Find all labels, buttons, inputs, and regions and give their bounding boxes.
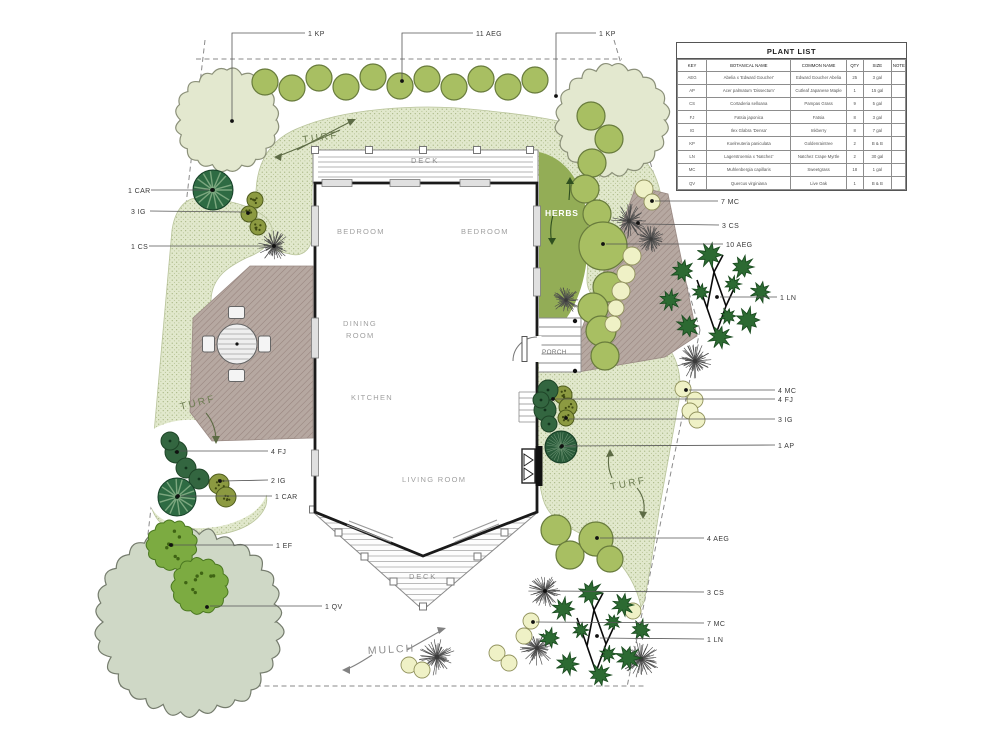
plant-label: 4 MC <box>778 388 796 395</box>
ig-speckle <box>571 406 573 408</box>
table-row: IGIlex Glabra 'Densa'Inkberry87 gal <box>678 124 906 137</box>
table-cell: Cortaderia selloana <box>707 97 791 110</box>
ig-speckle <box>253 199 255 201</box>
cs-pampas-grass <box>678 344 711 378</box>
ig-speckle <box>259 224 261 226</box>
ig-speckle <box>567 419 569 421</box>
plant-label: 1 LN <box>707 637 723 644</box>
plant-label: 1 KP <box>308 31 325 38</box>
ig-speckle <box>254 223 256 225</box>
aeg-abelia <box>441 74 467 100</box>
arrowhead <box>342 666 350 674</box>
ln-leaf-cluster <box>737 307 760 333</box>
leader-dot <box>595 634 599 638</box>
table-cell: AEG <box>678 71 707 84</box>
column-header: SIZE <box>863 60 891 72</box>
ln-leaf-cluster <box>605 615 621 630</box>
ig-speckle <box>215 487 217 489</box>
cs-center <box>649 237 653 241</box>
leader-dot <box>650 199 654 203</box>
area-label: MULCH <box>368 643 416 657</box>
table-cell: 30 gal <box>863 150 891 163</box>
ig-speckle <box>255 228 257 230</box>
aeg-abelia <box>591 342 619 370</box>
column-header: COMMON NAME <box>791 60 846 72</box>
ef-speckle <box>176 557 179 560</box>
fj-center <box>540 399 543 402</box>
table-cell: Inkberry <box>791 124 846 137</box>
aeg-abelia <box>387 73 413 99</box>
ig-speckle <box>216 481 218 483</box>
plant-label: 1 LN <box>780 295 796 302</box>
table-cell: LN <box>678 150 707 163</box>
cs-center <box>564 298 568 302</box>
ig-speckle <box>567 414 569 416</box>
area-label: LIVING ROOM <box>402 475 466 484</box>
plant-label: 1 AP <box>778 443 794 450</box>
plant-label: 1 CAR <box>128 188 151 195</box>
ln-leaf-cluster <box>579 581 604 606</box>
ln-leaf-cluster <box>540 628 560 648</box>
leader-dot <box>531 620 535 624</box>
table-cell: 1 gal <box>863 163 891 176</box>
fj-center <box>185 467 188 470</box>
ig-speckle <box>570 403 572 405</box>
column-header: BOTANICAL NAME <box>707 60 791 72</box>
aeg-abelia <box>414 66 440 92</box>
table-cell <box>891 177 905 190</box>
chair <box>229 307 245 319</box>
plant-label: 3 CS <box>707 590 724 597</box>
ln-leaf-cluster <box>573 623 589 638</box>
house-outline <box>315 183 537 556</box>
aeg-abelia <box>495 74 521 100</box>
table-cell: 2 <box>846 150 863 163</box>
aeg-abelia <box>597 546 623 572</box>
table-cell: 8 <box>846 124 863 137</box>
table-cell: Quercus virginiana <box>707 177 791 190</box>
mc-sweetgrass <box>605 316 621 332</box>
ef-speckle <box>212 574 215 577</box>
plant-label: 4 AEG <box>707 536 729 543</box>
table-cell: B & B <box>863 177 891 190</box>
cs-blade <box>536 638 537 645</box>
ig-speckle <box>218 484 220 486</box>
table-row: CSCortaderia selloanaPampas Grass95 gal <box>678 97 906 110</box>
plant-list-grid: KEYBOTANICAL NAMECOMMON NAMEQTYSIZENOTE … <box>677 59 906 190</box>
ig-speckle <box>561 395 563 397</box>
aeg-abelia <box>577 102 605 130</box>
plant-label: 7 MC <box>707 621 725 628</box>
table-cell <box>891 84 905 97</box>
ef-speckle <box>194 591 197 594</box>
mc-sweetgrass <box>689 412 705 428</box>
aeg-abelia <box>333 74 359 100</box>
ig-inkberry <box>250 219 266 235</box>
ef-speckle <box>184 581 187 584</box>
ln-leaf-cluster <box>708 327 732 349</box>
ln-crape-myrtle <box>540 581 651 686</box>
area-label: PORCH <box>542 349 567 356</box>
plant-list-header-row: KEYBOTANICAL NAMECOMMON NAMEQTYSIZENOTE <box>678 60 906 72</box>
table-cell: CS <box>678 97 707 110</box>
plant-label: 10 AEG <box>726 242 753 249</box>
ig-speckle <box>255 197 257 199</box>
plant-label: 1 CAR <box>275 494 298 501</box>
ig-speckle <box>250 198 252 200</box>
table-cell: 7 gal <box>863 124 891 137</box>
area-label: DINING <box>343 319 377 328</box>
table-cell: 8 <box>846 111 863 124</box>
table-cell: MC <box>678 163 707 176</box>
ef-speckle <box>191 588 194 591</box>
leader-dot <box>560 444 564 448</box>
plant-label: 2 IG <box>271 478 286 485</box>
table-row: AEGAbelia x 'Edward Goucher'Edward Gouch… <box>678 71 906 84</box>
table-row: MCMuhlenbergia capillarisSweetgrass181 g… <box>678 163 906 176</box>
chair <box>203 336 215 352</box>
porch-steps <box>539 318 581 373</box>
table-cell: 3 gal <box>863 71 891 84</box>
table-cell <box>891 97 905 110</box>
ln-leaf-cluster <box>751 282 771 303</box>
cs-center <box>535 646 540 651</box>
table-cell <box>891 150 905 163</box>
leader-dot <box>564 416 568 420</box>
table-row: KPKoelreuteria paniculataGoldenraintree2… <box>678 137 906 150</box>
leader-dot <box>543 589 547 593</box>
ef-speckle <box>174 555 177 558</box>
plant-label: 1 KP <box>599 31 616 38</box>
ig-speckle <box>568 406 570 408</box>
leader-dot <box>595 536 599 540</box>
leader-line <box>600 638 704 639</box>
leader-dot <box>272 244 276 248</box>
area-label: HERBS <box>545 208 579 218</box>
ln-leaf-cluster <box>693 284 710 300</box>
ef-speckle <box>200 572 203 575</box>
table-row: QVQuercus virginianaLive Oak1B & B <box>678 177 906 190</box>
column-header: KEY <box>678 60 707 72</box>
area-label: DECK <box>411 156 439 165</box>
aeg-abelia <box>579 222 627 270</box>
leader-line <box>536 622 704 623</box>
plant-label: 4 FJ <box>778 397 793 404</box>
table-cell: Sweetgrass <box>791 163 846 176</box>
table-cell: KP <box>678 137 707 150</box>
ln-leaf-cluster <box>552 597 574 621</box>
table-cell: QV <box>678 177 707 190</box>
table-cell: 9 <box>846 97 863 110</box>
chair <box>259 336 271 352</box>
table-cell: 1 <box>846 177 863 190</box>
leader-dot <box>205 605 209 609</box>
aeg-abelia <box>541 515 571 545</box>
ig-speckle <box>250 212 252 214</box>
ig-speckle <box>564 390 566 392</box>
ln-leaf-cluster <box>615 647 641 670</box>
aeg-abelia <box>595 125 623 153</box>
ln-leaf-cluster <box>733 255 754 277</box>
leader-dot <box>246 211 250 215</box>
table-cell: Lagerstroemia x 'Natchez' <box>707 150 791 163</box>
plant-label: 3 IG <box>778 417 793 424</box>
cs-center <box>627 219 632 224</box>
leader-line <box>548 591 704 592</box>
mc-sweetgrass <box>612 282 630 300</box>
ef-speckle <box>195 574 198 577</box>
ln-leaf-cluster <box>589 664 611 685</box>
mc-sweetgrass <box>414 662 430 678</box>
leader-dot <box>684 388 688 392</box>
plant-label: 3 IG <box>131 209 146 216</box>
ig-speckle <box>561 391 563 393</box>
ig-speckle <box>223 498 225 500</box>
cs-center <box>693 359 698 364</box>
ig-speckle <box>226 498 228 500</box>
leader-dot <box>636 221 640 225</box>
table-cell: 5 gal <box>863 97 891 110</box>
table-cell: Live Oak <box>791 177 846 190</box>
mc-sweetgrass <box>501 655 517 671</box>
ln-leaf-cluster <box>725 276 741 293</box>
ig-speckle <box>255 202 257 204</box>
ig-speckle <box>562 416 564 418</box>
mc-sweetgrass <box>523 613 539 629</box>
table-row: APAcer palmatum 'Dissectum'Cutleaf Japan… <box>678 84 906 97</box>
ig-speckle <box>228 499 230 501</box>
ig-speckle <box>255 226 257 228</box>
cs-center <box>435 655 440 660</box>
plant-label: 11 AEG <box>476 31 502 38</box>
cs-blade <box>539 649 551 658</box>
table-cell: IG <box>678 124 707 137</box>
table-cell: 15 gal <box>863 84 891 97</box>
table-cell: Fatsia <box>791 111 846 124</box>
aeg-abelia <box>279 75 305 101</box>
leader-dot <box>554 94 558 98</box>
aeg-abelia <box>578 149 606 177</box>
kp-goldenraintree <box>555 64 669 177</box>
aeg-abelia <box>522 67 548 93</box>
plant-list-table: PLANT LIST KEYBOTANICAL NAMECOMMON NAMEQ… <box>676 42 907 191</box>
ig-inkberry <box>216 487 236 507</box>
leader-dot <box>210 188 214 192</box>
area-label: DECK <box>409 572 437 581</box>
table-cell: Fatsia japonica <box>707 111 791 124</box>
area-label: BEDROOM <box>461 227 509 236</box>
cs-blade <box>520 647 535 648</box>
table-cell: 2 <box>846 137 863 150</box>
column-header: NOTE <box>891 60 905 72</box>
fireplace <box>522 446 543 486</box>
table-cell <box>891 163 905 176</box>
ig-speckle <box>248 209 250 211</box>
table-cell: 18 <box>846 163 863 176</box>
leader-dot <box>218 479 222 483</box>
table-cell: Edward Goucher Abelia <box>791 71 846 84</box>
leader-dot <box>176 494 180 498</box>
table-cell: Acer palmatum 'Dissectum' <box>707 84 791 97</box>
plant-label: 1 EF <box>276 543 292 550</box>
aeg-abelia <box>360 64 386 90</box>
aeg-abelia <box>468 66 494 92</box>
mc-sweetgrass <box>516 628 532 644</box>
leader-dot <box>175 450 179 454</box>
plant-label: 1 CS <box>131 244 148 251</box>
ef-speckle <box>165 546 168 549</box>
leader-dot <box>551 397 555 401</box>
table-cell: B & B <box>863 137 891 150</box>
table-cell <box>891 137 905 150</box>
plant-label: 4 FJ <box>271 449 286 456</box>
area-label: BEDROOM <box>337 227 385 236</box>
table-cell: Abelia x 'Edward Goucher' <box>707 71 791 84</box>
table-cell: Goldenraintree <box>791 137 846 150</box>
table-cell: Koelreuteria paniculata <box>707 137 791 150</box>
fj-center <box>198 478 201 481</box>
ig-speckle <box>563 419 565 421</box>
table-cell: 1 <box>846 84 863 97</box>
mc-sweetgrass <box>617 265 635 283</box>
table-cell: Pampas Grass <box>791 97 846 110</box>
fj-center <box>544 409 547 412</box>
mc-sweetgrass <box>608 300 624 316</box>
mc-sweetgrass <box>623 247 641 265</box>
ln-leaf-cluster <box>556 653 579 676</box>
table-cell: Muhlenbergia capillaris <box>707 163 791 176</box>
leader-dot <box>400 79 404 83</box>
plant-label: 3 CS <box>722 223 739 230</box>
table-cell <box>891 111 905 124</box>
aeg-abelia <box>571 175 599 203</box>
area-label: ROOM <box>346 331 375 340</box>
table-cell: Cutleaf Japanese Maple <box>791 84 846 97</box>
fj-center <box>548 423 551 426</box>
ef-speckle <box>173 530 176 533</box>
table-cell: Natchez Crape Myrtle <box>791 150 846 163</box>
table-cell: AP <box>678 84 707 97</box>
plant-label: 1 QV <box>325 604 343 611</box>
ef-speckle <box>178 535 181 538</box>
plant-label: 7 MC <box>721 199 739 206</box>
table-cell: 3 gal <box>863 111 891 124</box>
table-row: FJFatsia japonicaFatsia83 gal <box>678 111 906 124</box>
ig-speckle <box>258 229 260 231</box>
leader-dot <box>715 295 719 299</box>
table-cell: FJ <box>678 111 707 124</box>
aeg-abelia <box>306 65 332 91</box>
cs-blade <box>695 363 696 378</box>
arrowhead <box>437 627 446 634</box>
leader-dot <box>169 543 173 547</box>
table-cell: 25 <box>846 71 863 84</box>
ln-leaf-cluster <box>632 619 650 639</box>
table-cell <box>891 71 905 84</box>
aeg-abelia <box>252 69 278 95</box>
car-ray <box>176 479 177 497</box>
column-header: QTY <box>846 60 863 72</box>
fj-center <box>169 440 172 443</box>
ig-speckle <box>565 407 567 409</box>
table-cell <box>891 124 905 137</box>
chair <box>229 370 245 382</box>
area-label: KITCHEN <box>351 393 393 402</box>
plant-list-title: PLANT LIST <box>677 43 906 59</box>
table-row: LNLagerstroemia x 'Natchez'Natchez Crape… <box>678 150 906 163</box>
leader-dot <box>230 119 234 123</box>
fj-center <box>547 389 550 392</box>
table-cell: Ilex Glabra 'Densa' <box>707 124 791 137</box>
landscape-plan-canvas: 1 KP11 AEG1 KP1 CAR3 IG1 CS4 FJ2 IG1 CAR… <box>0 0 1000 732</box>
ef-speckle <box>194 578 197 581</box>
leader-dot <box>601 242 605 246</box>
